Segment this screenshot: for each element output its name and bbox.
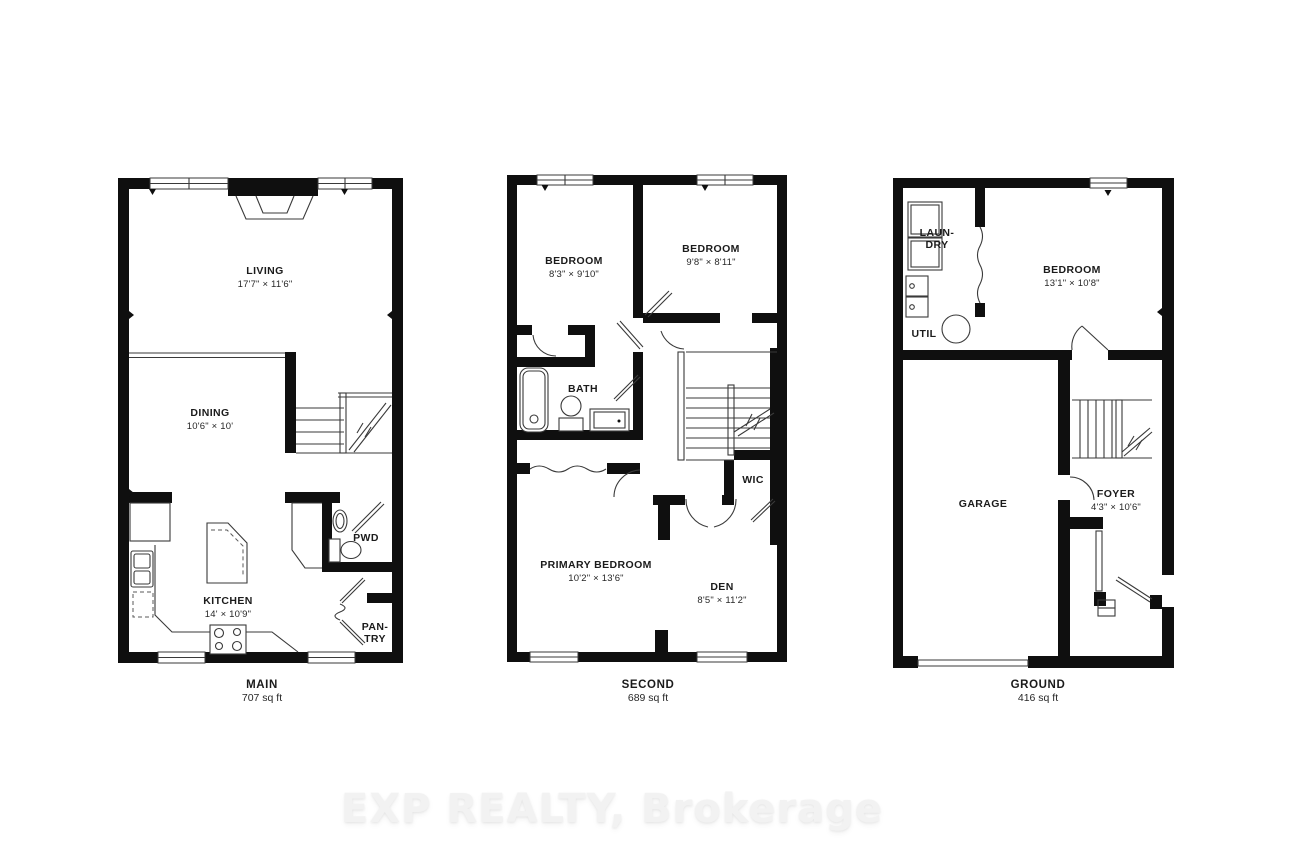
window — [537, 175, 593, 185]
room-label-util: UTIL — [912, 328, 937, 340]
window — [530, 652, 578, 662]
room-label-den: DEN — [710, 581, 733, 593]
floor-area-second: 689 sq ft — [628, 692, 668, 704]
brokerage-watermark: EXP REALTY, Brokerage — [341, 786, 883, 832]
garage-door — [918, 660, 1028, 666]
floorplan-main: LIVING 17'7" × 11'6" DINING 10'6" × 10' … — [118, 178, 403, 704]
room-label-bedroom1: BEDROOM — [545, 255, 603, 267]
foyer-closet-door — [1096, 531, 1102, 591]
pantry-door — [335, 578, 365, 645]
window — [308, 652, 355, 663]
window — [1090, 178, 1127, 188]
window — [697, 652, 747, 662]
main-walls — [118, 178, 403, 663]
ground-windows — [1090, 178, 1127, 188]
fireplace — [236, 196, 313, 219]
floor-name-ground: GROUND — [1011, 679, 1066, 691]
room-label-wic: WIC — [742, 474, 764, 486]
room-dims-living: 17'7" × 11'6" — [238, 279, 293, 290]
room-label-bedroom3: BEDROOM — [1043, 264, 1101, 276]
bathtub — [520, 368, 548, 432]
dimension-ticks — [129, 189, 392, 497]
room-label-primary: PRIMARY BEDROOM — [540, 559, 652, 571]
room-label-dining: DINING — [190, 407, 229, 419]
room-dims-dining: 10'6" × 10' — [187, 421, 233, 432]
floor-name-second: SECOND — [622, 679, 675, 691]
room-label-kitchen: KITCHEN — [203, 595, 252, 607]
floor-name-main: MAIN — [246, 679, 278, 691]
window — [150, 178, 228, 189]
stove — [210, 625, 246, 654]
water-heater — [942, 315, 970, 343]
closet-sliding-door — [530, 466, 606, 472]
room-label-pantry-2: TRY — [364, 633, 386, 645]
floor-area-main: 707 sq ft — [242, 692, 282, 704]
room-label-pantry-1: PAN- — [362, 621, 389, 633]
room-label-pwd: PWD — [353, 532, 379, 544]
stairs — [296, 393, 392, 453]
room-dims-den: 8'5" × 11'2" — [697, 595, 746, 606]
room-dims-primary: 10'2" × 13'6" — [568, 573, 624, 584]
accordion-door — [978, 227, 983, 303]
toilet — [559, 396, 583, 431]
room-dims-bedroom2: 9'8" × 8'11" — [686, 257, 735, 268]
kitchen-island — [207, 523, 247, 583]
room-dims-kitchen: 14' × 10'9" — [205, 609, 251, 620]
window — [158, 652, 205, 663]
vanity-sink — [590, 409, 629, 431]
room-label-laundry-1: LAUN- — [920, 227, 955, 239]
room-label-laundry-2: DRY — [926, 239, 949, 251]
floorplan-second: BEDROOM 8'3" × 9'10" BEDROOM 9'8" × 8'11… — [507, 175, 787, 704]
room-dims-bedroom1: 8'3" × 9'10" — [549, 269, 599, 280]
ground-floor-caption: GROUND 416 sq ft — [1011, 679, 1066, 704]
dimension-ticks — [1105, 190, 1163, 316]
dimension-ticks — [542, 185, 709, 191]
window — [697, 175, 753, 185]
room-dims-bedroom3: 13'1" × 10'8" — [1044, 278, 1100, 289]
room-label-bedroom2: BEDROOM — [682, 243, 740, 255]
main-floor-caption: MAIN 707 sq ft — [242, 679, 282, 704]
floorplan-ground: LAUN- DRY UTIL BEDROOM 13'1" × 10'8" GAR… — [893, 178, 1174, 704]
second-floor-caption: SECOND 689 sq ft — [622, 679, 675, 704]
floorplan-page: LIVING 17'7" × 11'6" DINING 10'6" × 10' … — [0, 0, 1300, 867]
closet — [292, 503, 322, 568]
ground-room-labels: LAUN- DRY UTIL BEDROOM 13'1" × 10'8" GAR… — [912, 227, 1141, 513]
door-swing — [352, 502, 384, 533]
floorplan-drawing: LIVING 17'7" × 11'6" DINING 10'6" × 10' … — [0, 0, 1300, 867]
room-label-living: LIVING — [246, 265, 283, 277]
room-label-bath: BATH — [568, 383, 598, 395]
main-room-labels: LIVING 17'7" × 11'6" DINING 10'6" × 10' … — [187, 265, 389, 645]
kitchen-sink — [131, 551, 153, 587]
stairs — [1072, 400, 1152, 458]
half-wall — [129, 353, 285, 358]
door-swing — [1070, 326, 1152, 602]
room-label-foyer: FOYER — [1097, 488, 1135, 500]
window — [318, 178, 372, 189]
stairs — [678, 352, 777, 460]
room-dims-foyer: 4'3" × 10'6" — [1091, 502, 1141, 513]
room-label-garage: GARAGE — [959, 498, 1008, 510]
floor-area-ground: 416 sq ft — [1018, 692, 1058, 704]
utility-panels — [906, 276, 928, 317]
